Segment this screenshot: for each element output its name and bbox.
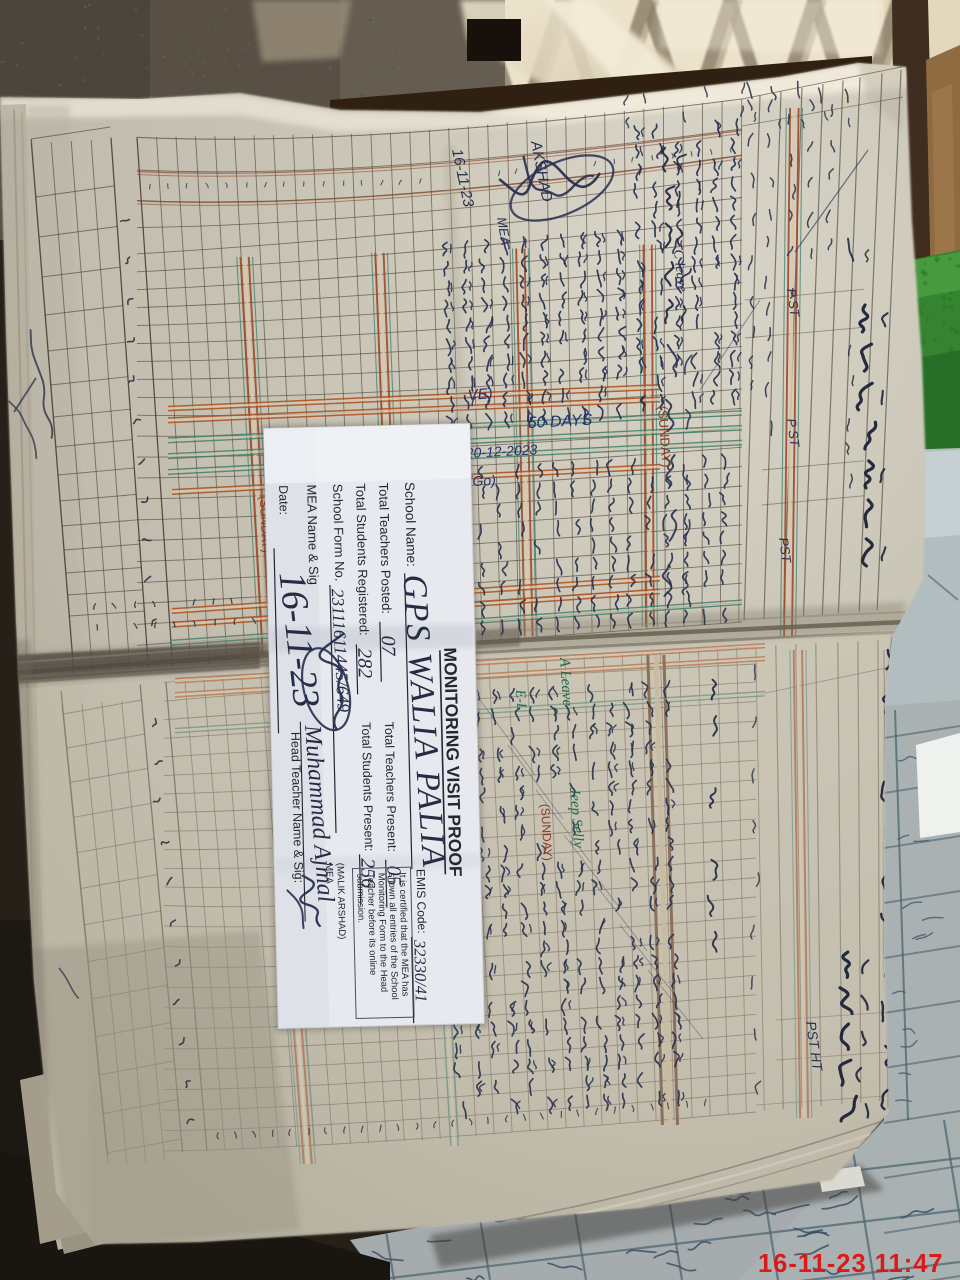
svg-text:School Name:: School Name: bbox=[402, 482, 419, 567]
svg-text:E-L: E-L bbox=[512, 688, 529, 711]
svg-text:07: 07 bbox=[377, 635, 400, 657]
svg-text:(MALIK ARSHAD): (MALIK ARSHAD) bbox=[334, 863, 347, 940]
svg-text:Total Teachers Posted:: Total Teachers Posted: bbox=[376, 483, 394, 615]
svg-text:School Form No.: School Form No. bbox=[330, 484, 347, 582]
svg-text:submission.: submission. bbox=[355, 873, 367, 923]
svg-text:VE): VE) bbox=[467, 385, 493, 404]
svg-text:(SUNDAY): (SUNDAY) bbox=[538, 803, 555, 861]
svg-text:16-11-23 11:47: 16-11-23 11:47 bbox=[758, 1250, 944, 1278]
svg-text:Date:: Date: bbox=[276, 485, 291, 515]
svg-text:MEA: MEA bbox=[323, 863, 335, 885]
svg-text:EMIS Code:: EMIS Code: bbox=[414, 869, 430, 934]
svg-text:50 DAYS: 50 DAYS bbox=[527, 412, 593, 432]
